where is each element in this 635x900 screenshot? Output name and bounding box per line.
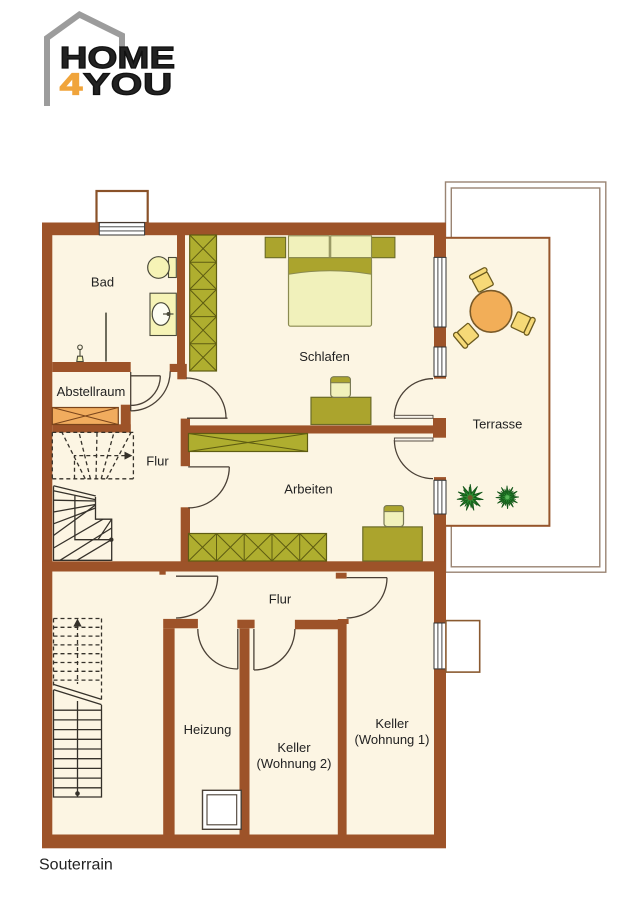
svg-text:Keller: Keller [277, 740, 311, 755]
svg-text:Flur: Flur [146, 454, 169, 469]
svg-text:Arbeiten: Arbeiten [284, 482, 332, 497]
svg-text:Bad: Bad [91, 275, 114, 290]
svg-text:Terrasse: Terrasse [473, 417, 523, 432]
svg-text:Heizung: Heizung [184, 722, 232, 737]
svg-text:Flur: Flur [269, 592, 292, 607]
svg-text:(Wohnung 1): (Wohnung 1) [355, 732, 430, 747]
svg-text:Abstellraum: Abstellraum [57, 384, 126, 399]
svg-text:Keller: Keller [375, 716, 409, 731]
svg-text:Schlafen: Schlafen [299, 349, 350, 364]
svg-text:(Wohnung 2): (Wohnung 2) [257, 756, 332, 771]
svg-text:Souterrain: Souterrain [39, 857, 113, 874]
svg-text:4YOU: 4YOU [60, 67, 173, 101]
